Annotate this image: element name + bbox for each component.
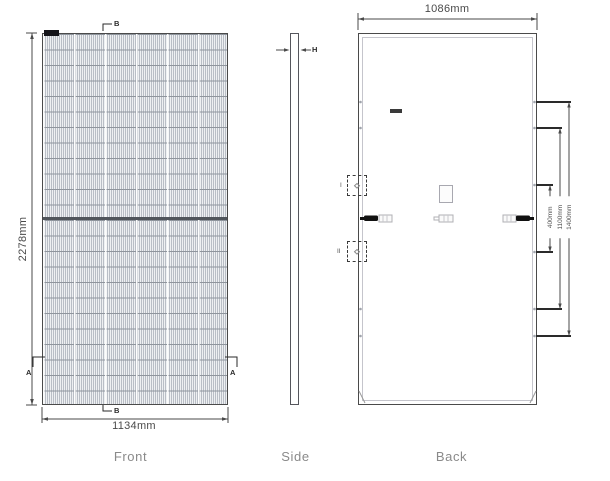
detail-marker-2: II <box>337 248 341 255</box>
front-width-dimension: 1134mm <box>94 420 174 432</box>
caption-back-view: Back <box>411 449 492 464</box>
section-marker-b-top: B <box>114 19 119 28</box>
front-height-dimension: 2278mm <box>17 196 29 282</box>
dimension-linework <box>0 0 610 481</box>
mount-dim-1100: 1100mm <box>558 196 565 238</box>
section-marker-a-right: A <box>230 368 235 377</box>
caption-front-view: Front <box>90 449 171 464</box>
mc4-connector-icons <box>360 215 534 222</box>
thickness-marker-h: H <box>312 45 317 54</box>
section-marker-b-bottom: B <box>114 406 119 415</box>
back-width-dimension: 1086mm <box>407 3 487 15</box>
detail-marker-1: I <box>340 182 342 189</box>
mount-dim-400: 400mm <box>548 196 555 238</box>
mount-dim-1400: 1400mm <box>567 196 574 238</box>
section-marker-a-left: A <box>26 368 31 377</box>
grounding-hole-icon <box>355 184 360 255</box>
caption-side-view: Side <box>255 449 336 464</box>
solar-panel-technical-drawing: 2278mm 1134mm A A B B H 1086mm 400mm 110… <box>0 0 610 481</box>
